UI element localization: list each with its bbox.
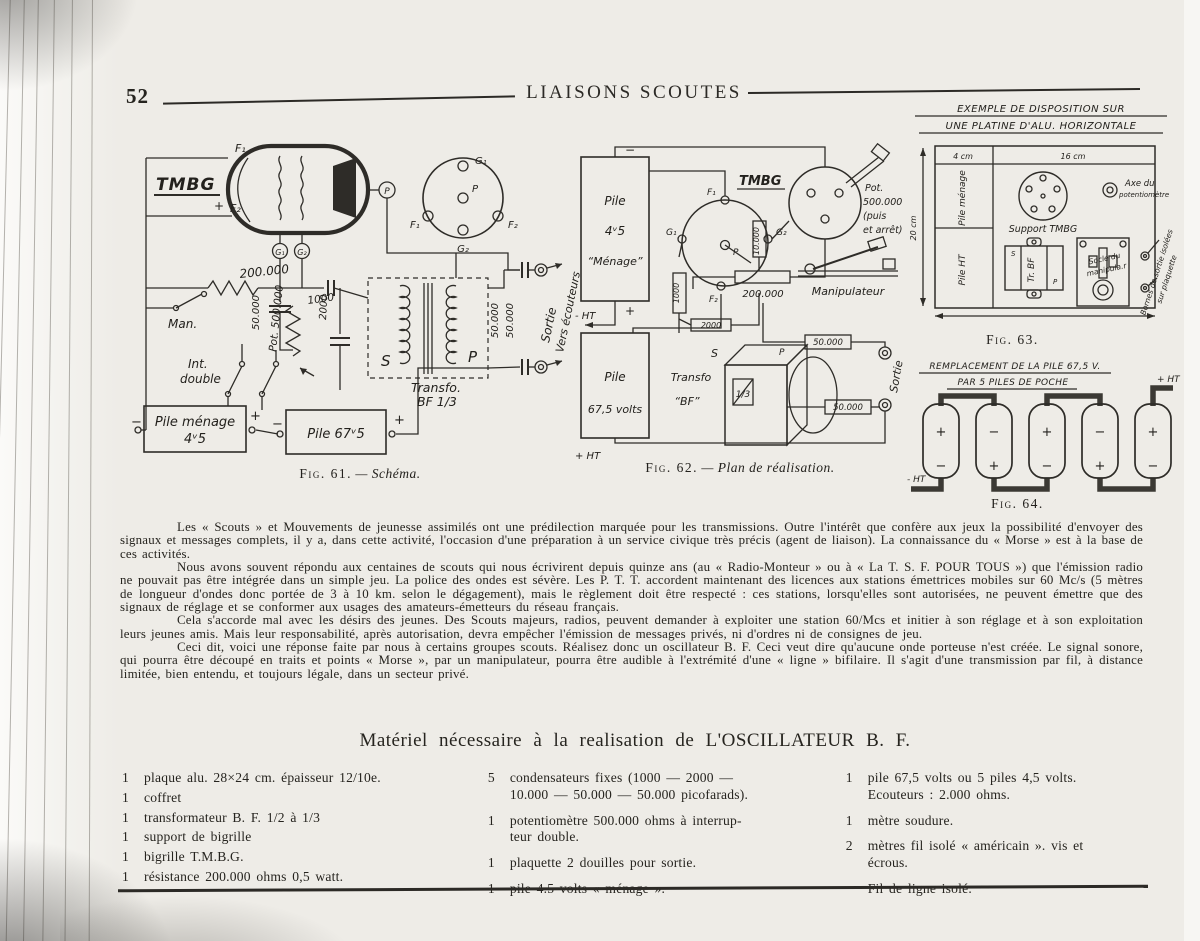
label-pile1-minus: −	[625, 143, 635, 157]
label-g1: G₁	[275, 248, 284, 257]
label-plus: +	[214, 199, 224, 213]
label-f1: F₁	[235, 142, 246, 155]
label-g2: G₂	[297, 248, 307, 257]
label-tr-bf: Tr. BF	[1027, 257, 1037, 283]
label-pile2-1: Pile	[604, 370, 625, 384]
label-pile-menage: Pile ménage	[957, 170, 968, 226]
page-edge-line	[5, 0, 25, 941]
battery-sign: +	[936, 425, 947, 440]
item-qty: 1	[488, 813, 510, 847]
page-edge-line	[89, 0, 93, 941]
journal-title: LIAISONS SCOUTES	[518, 82, 750, 104]
label-f2: F₂	[230, 202, 241, 215]
battery-sign: −	[1095, 425, 1106, 440]
fig64-caption: Fig. 64.	[905, 496, 1130, 512]
label-pile1-minus: −	[131, 415, 142, 430]
fig63-caption-label: Fig. 63.	[986, 332, 1039, 347]
label-minus-ht: - HT	[575, 311, 596, 322]
battery-sign: +	[1095, 459, 1106, 474]
battery-sign: +	[1148, 425, 1159, 440]
scanned-magazine-page: 52 LIAISONS SCOUTES	[0, 0, 1200, 941]
item-qty: 5	[488, 770, 510, 804]
item-text: transformateur B. F. 1/2 à 1/3	[144, 810, 474, 827]
label-pile-menage-1: Pile ménage	[155, 415, 235, 430]
fig64-title-1: REMPLACEMENT DE LA PILE 67,5 V.	[929, 362, 1100, 372]
label-sortie: Sortie	[887, 359, 905, 393]
fig61-socket-diagram	[423, 158, 503, 238]
label-transfo-1: Transfo.	[411, 380, 461, 395]
material-item: 1potentiomètre 500.000 ohms à interrup- …	[488, 813, 832, 847]
page-edge-line	[64, 0, 73, 941]
page-number: 52	[126, 84, 149, 109]
material-item: 1plaquette 2 douilles pour sortie.	[488, 855, 832, 872]
item-qty: 1	[122, 770, 144, 787]
page-edge-line	[42, 0, 55, 941]
label-cap-2000: 2000	[318, 294, 330, 320]
fig62-caption-label: Fig. 62.	[645, 460, 698, 475]
page-edge-line	[23, 0, 39, 941]
item-text: potentiomètre 500.000 ohms à interrup- t…	[510, 813, 832, 847]
item-text: bigrille T.M.B.G.	[144, 849, 474, 866]
item-qty: 1	[846, 770, 868, 804]
paragraph: Ceci dit, voici une réponse faite par no…	[120, 641, 1143, 681]
label-primary: P	[779, 348, 785, 358]
label-g1: G₁	[666, 228, 677, 238]
label-sec: S	[1011, 250, 1016, 258]
label-pot-1: Pot.	[865, 183, 883, 194]
label-man: Man.	[168, 317, 197, 331]
fig63-title-2: UNE PLATINE D'ALU. HORIZONTALE	[946, 121, 1137, 132]
item-qty: 1	[122, 790, 144, 807]
fig62-components	[673, 221, 871, 414]
battery-sign: +	[1042, 425, 1053, 440]
item-qty	[846, 881, 868, 898]
battery-sign: −	[1148, 459, 1159, 474]
label-socket-p: P	[472, 184, 479, 195]
material-item: 2mètres fil isolé « américain ». vis et …	[846, 838, 1162, 872]
battery-sign: +	[989, 459, 1000, 474]
material-item: 1plaque alu. 28×24 cm. épaisseur 12/10e.	[122, 770, 474, 787]
label-socket-f1: F₁	[410, 220, 420, 231]
label-cap-10000: 10.000	[752, 227, 761, 255]
item-text: condensateurs fixes (1000 — 2000 — 10.00…	[510, 770, 832, 804]
item-qty: 1	[488, 855, 510, 872]
label-out-cap-2: 50.000	[505, 303, 516, 338]
label-dim-4cm: 4 cm	[953, 152, 973, 161]
label-int-1: Int.	[188, 357, 208, 371]
item-text: support de bigrille	[144, 829, 474, 846]
paragraph: Les « Scouts » et Mouvements de jeunesse…	[120, 521, 1143, 561]
label-axe-2: potentiomètre	[1118, 191, 1169, 199]
fig62-morse-key	[798, 237, 898, 276]
item-qty: 1	[122, 810, 144, 827]
label-transfo-1: Transfo	[671, 371, 712, 384]
fig64-caption-label: Fig. 64.	[991, 496, 1044, 511]
fig63-tube-support	[1019, 172, 1067, 220]
label-grid-resistor: 200.000	[239, 262, 290, 281]
label-pile1-3: “Ménage”	[587, 255, 642, 268]
item-qty: 1	[122, 869, 144, 886]
fig63-title-1: EXEMPLE DE DISPOSITION SUR	[957, 104, 1125, 115]
battery-sign: −	[1042, 459, 1053, 474]
label-pile-menage-2: 4ᵛ5	[184, 432, 206, 447]
label-socket-g1: G₁	[475, 156, 487, 167]
label-cap-2000: 2000	[701, 321, 721, 330]
fig62-caption-text: — Plan de réalisation.	[701, 460, 834, 475]
item-text: plaquette 2 douilles pour sortie.	[510, 855, 832, 872]
label-prim: P	[1053, 278, 1058, 286]
label-pile-675: Pile 67ᵛ5	[307, 427, 364, 442]
fig62-caption: Fig. 62. — Plan de réalisation.	[575, 460, 905, 476]
fig61-caption-label: Fig. 61.	[299, 466, 352, 481]
label-pile-ht: Pile HT	[958, 253, 968, 286]
label-cap-1000: 1000	[672, 283, 681, 303]
label-pile1-2: 4ᵛ5	[605, 224, 625, 238]
fig61-caption-text: — Schéma.	[355, 466, 420, 481]
label-pile2-plus: +	[394, 413, 405, 428]
article-body: Les « Scouts » et Mouvements de jeunesse…	[120, 521, 1143, 681]
label-p: P	[733, 248, 739, 258]
fig64-title-2: PAR 5 PILES DE POCHE	[958, 378, 1069, 388]
label-secondary: S	[381, 352, 391, 370]
materials-heading: Matériel nécessaire à la realisation de …	[120, 730, 1150, 752]
label-pot-4: et arrêt)	[863, 225, 903, 236]
item-qty: 1	[122, 829, 144, 846]
material-item: 1pile 67,5 volts ou 5 piles 4,5 volts. E…	[846, 770, 1162, 804]
header-rule-right	[748, 88, 1140, 94]
label-secondary: S	[711, 347, 718, 360]
material-item: 5condensateurs fixes (1000 — 2000 — 10.0…	[488, 770, 832, 804]
label-potentiometer: Pot. 500.000	[267, 284, 286, 352]
label-socket-g2: G₂	[457, 244, 469, 255]
materials-column-1: 1plaque alu. 28×24 cm. épaisseur 12/10e.…	[122, 770, 474, 907]
material-item: 1coffret	[122, 790, 474, 807]
material-item: 1transformateur B. F. 1/2 à 1/3	[122, 810, 474, 827]
label-r-out-bottom: 50.000	[833, 403, 863, 413]
label-pile1-1: Pile	[604, 194, 625, 208]
label-socket-f2: F₂	[508, 220, 518, 231]
battery-sign: −	[989, 425, 1000, 440]
label-f2: F₂	[709, 295, 718, 305]
label-tube-name: TMBG	[156, 175, 215, 195]
header-rule-left	[163, 95, 515, 105]
label-pile1-plus: +	[250, 409, 261, 424]
label-pot-2: 500.000	[863, 197, 902, 208]
label-transfo-2: BF 1/3	[417, 394, 457, 409]
material-item: 1support de bigrille	[122, 829, 474, 846]
fig61-caption: Fig. 61. — Schéma.	[150, 466, 570, 482]
item-qty: 2	[846, 838, 868, 872]
label-f1: F₁	[707, 188, 716, 198]
item-text: plaque alu. 28×24 cm. épaisseur 12/10e.	[144, 770, 474, 787]
material-item: Fil de ligne isolé.	[846, 881, 1162, 898]
paragraph: Cela s'accorde mal avec les désirs des j…	[120, 614, 1143, 641]
label-int-2: double	[180, 372, 221, 386]
label-g2: G₂	[776, 228, 787, 238]
material-item: 1mètre soudure.	[846, 813, 1162, 830]
battery-sign: −	[936, 459, 947, 474]
item-text: Fil de ligne isolé.	[868, 881, 1162, 898]
item-qty: 1	[122, 849, 144, 866]
label-support-tmbg: Support TMBG	[1009, 224, 1077, 235]
label-cap-50000: 50.000	[251, 295, 262, 330]
label-dim-16cm: 16 cm	[1061, 152, 1086, 161]
material-item: 1bigrille T.M.B.G.	[122, 849, 474, 866]
item-text: résistance 200.000 ohms 0,5 watt.	[144, 869, 474, 886]
label-r-out-top: 50.000	[813, 338, 843, 348]
item-text: coffret	[144, 790, 474, 807]
item-text: pile 67,5 volts ou 5 piles 4,5 volts. Ec…	[868, 770, 1162, 804]
label-minus-ht: - HT	[907, 475, 927, 485]
paragraph: Nous avons souvent répondu aux centaines…	[120, 561, 1143, 614]
item-qty: 1	[846, 813, 868, 830]
fig63-caption: Fig. 63.	[905, 332, 1120, 348]
label-tube-name: TMBG	[739, 174, 782, 189]
label-plus-ht: + HT	[1157, 375, 1181, 385]
fig63-pot-axis	[1103, 183, 1117, 197]
label-pot-3: (puis	[863, 211, 886, 222]
label-transfo-3: 1/3	[736, 390, 751, 400]
label-manipulateur: Manipulateur	[812, 285, 886, 298]
material-item: 1résistance 200.000 ohms 0,5 watt.	[122, 869, 474, 886]
label-pile1-plus: +	[625, 304, 635, 318]
label-dim-20cm: 20 cm	[909, 215, 918, 240]
figure-62-layout-plan: − Pile 4ᵛ5 “Ménage” + - HT Pile 67,5 vol…	[573, 143, 905, 473]
label-pile2-minus: −	[272, 417, 283, 432]
item-text: mètre soudure.	[868, 813, 1162, 830]
label-transfo-2: “BF”	[674, 395, 700, 408]
figure-61-schematic: TMBG F₁ + F₂ G₁ G₂ P G₁ P F₁ F₂ G₂ 200.0…	[128, 138, 573, 478]
figure-64-battery-replacement: REMPLACEMENT DE LA PILE 67,5 V. PAR 5 PI…	[905, 358, 1197, 496]
label-pile2-2: 67,5 volts	[588, 403, 643, 416]
book-binding-edge	[0, 0, 118, 941]
figure-63-chassis-layout: EXEMPLE DE DISPOSITION SUR UNE PLATINE D…	[905, 98, 1177, 330]
label-primary: P	[468, 348, 478, 366]
label-p: P	[384, 187, 390, 197]
label-out-cap-1: 50.000	[490, 303, 501, 338]
fig61-tube	[228, 146, 395, 259]
item-text: mètres fil isolé « américain ». vis et é…	[868, 838, 1162, 872]
label-r-200000: 200.000	[742, 289, 783, 300]
label-axe-1: Axe du	[1124, 179, 1155, 189]
